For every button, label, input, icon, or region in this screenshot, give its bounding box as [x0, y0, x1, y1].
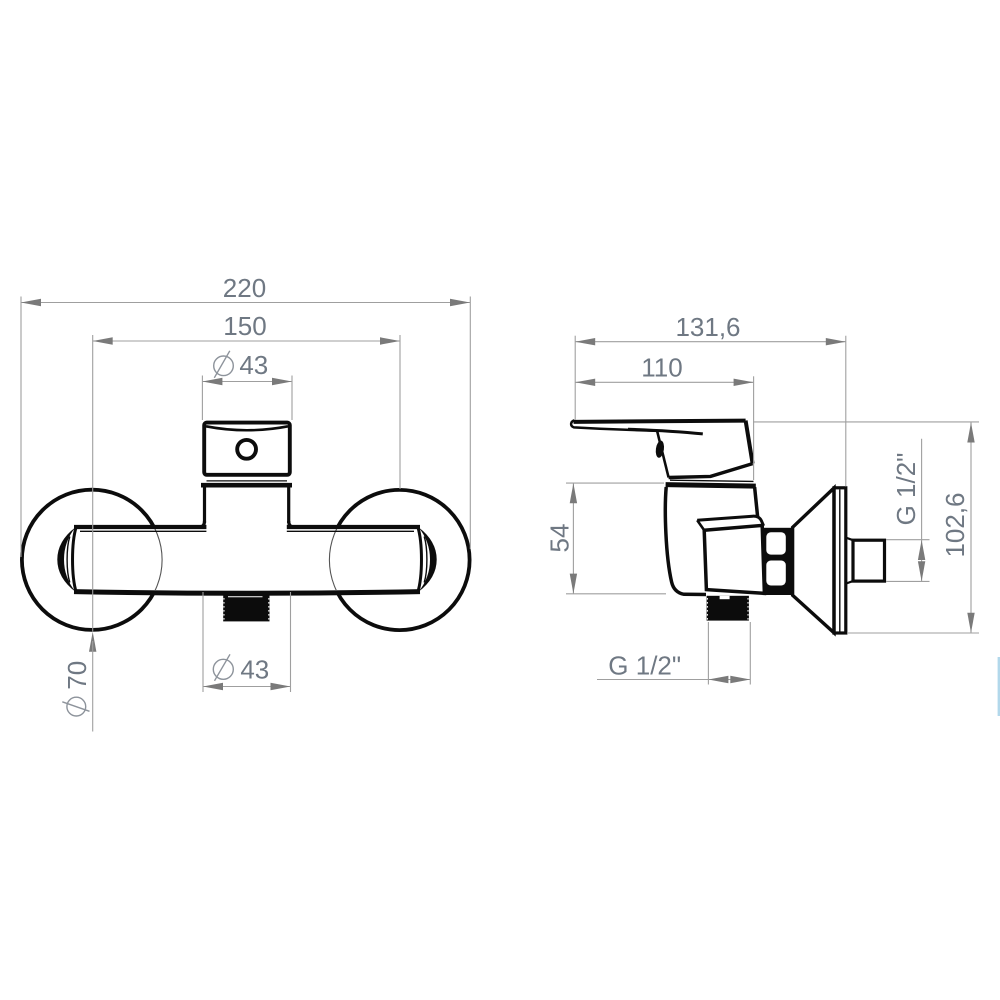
svg-text:131,6: 131,6: [675, 312, 740, 342]
svg-text:43: 43: [240, 655, 269, 685]
svg-text:54: 54: [545, 524, 575, 553]
svg-text:220: 220: [223, 273, 266, 303]
svg-text:110: 110: [641, 352, 682, 382]
svg-text:150: 150: [223, 311, 266, 341]
svg-text:70: 70: [62, 661, 92, 690]
svg-text:102,6: 102,6: [940, 492, 970, 557]
svg-text:G 1/2": G 1/2": [891, 453, 921, 526]
svg-text:G 1/2": G 1/2": [608, 650, 681, 680]
svg-text:43: 43: [239, 350, 268, 380]
